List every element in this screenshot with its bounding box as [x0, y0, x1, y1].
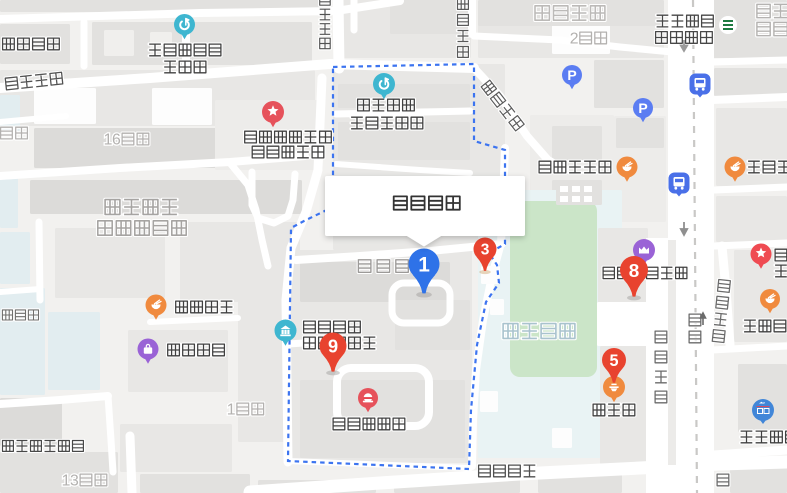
svg-text:P: P [567, 67, 576, 83]
svg-text:P: P [638, 100, 647, 116]
svg-text:3: 3 [481, 242, 490, 259]
svg-text:1: 1 [227, 401, 236, 418]
svg-text:9: 9 [328, 337, 338, 357]
svg-text:5: 5 [609, 352, 618, 370]
svg-text:8: 8 [629, 261, 640, 282]
svg-text:2: 2 [570, 30, 579, 47]
svg-text:6: 6 [112, 131, 121, 148]
svg-text:1: 1 [418, 254, 430, 277]
svg-text:3: 3 [70, 472, 79, 489]
